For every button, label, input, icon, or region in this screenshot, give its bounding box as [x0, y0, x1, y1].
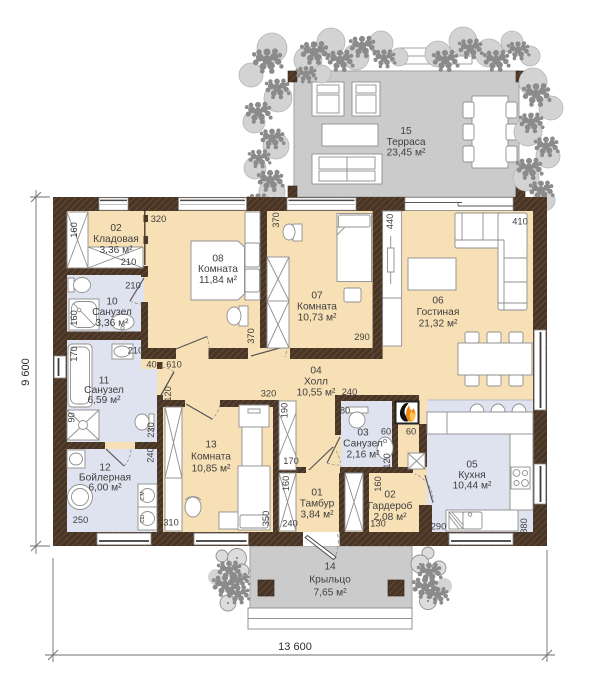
- svg-text:07: 07: [311, 291, 323, 302]
- svg-text:160: 160: [373, 476, 383, 492]
- svg-text:С.М: С.М: [140, 491, 146, 500]
- svg-text:Кухня: Кухня: [458, 470, 485, 481]
- svg-text:240: 240: [342, 387, 358, 397]
- svg-text:6,00 м²: 6,00 м²: [88, 483, 122, 494]
- svg-text:3,36 м²: 3,36 м²: [95, 318, 129, 329]
- svg-text:Комната: Комната: [198, 264, 238, 275]
- svg-text:6,59 м²: 6,59 м²: [87, 395, 121, 406]
- svg-text:410: 410: [512, 217, 528, 227]
- svg-text:350: 350: [261, 511, 271, 527]
- svg-text:250: 250: [73, 515, 89, 525]
- svg-text:320: 320: [151, 214, 167, 224]
- svg-text:2,16 м²: 2,16 м²: [346, 450, 380, 461]
- svg-text:7,65 м²: 7,65 м²: [313, 588, 347, 599]
- svg-text:240: 240: [282, 519, 298, 529]
- svg-text:13: 13: [205, 440, 217, 451]
- svg-text:440: 440: [385, 214, 395, 230]
- svg-text:3,84 м²: 3,84 м²: [300, 510, 334, 521]
- svg-text:120: 120: [163, 386, 173, 402]
- svg-text:160: 160: [69, 310, 79, 326]
- svg-text:60: 60: [406, 427, 416, 437]
- svg-text:11,84 м²: 11,84 м²: [199, 275, 238, 286]
- svg-text:10,85 м²: 10,85 м²: [192, 464, 231, 475]
- svg-text:170: 170: [69, 346, 79, 362]
- svg-text:10: 10: [106, 297, 118, 308]
- svg-text:120: 120: [382, 453, 392, 469]
- svg-text:03: 03: [357, 428, 369, 439]
- svg-text:14: 14: [324, 562, 336, 573]
- svg-text:Терраса: Терраса: [386, 137, 425, 148]
- svg-text:15: 15: [400, 126, 412, 137]
- svg-text:370: 370: [271, 212, 281, 228]
- svg-text:210: 210: [128, 346, 144, 356]
- svg-text:3,36 м²: 3,36 м²: [99, 245, 133, 256]
- svg-text:Комната: Комната: [297, 302, 337, 313]
- svg-text:Гардероб: Гардероб: [368, 500, 413, 512]
- svg-text:290: 290: [354, 332, 370, 342]
- svg-text:10,44 м²: 10,44 м²: [453, 481, 492, 492]
- svg-text:40: 40: [146, 359, 156, 369]
- svg-text:Кладовая: Кладовая: [93, 234, 139, 245]
- svg-text:01: 01: [311, 488, 323, 499]
- svg-text:Гостиная: Гостиная: [417, 307, 460, 318]
- svg-text:СШ: СШ: [140, 514, 146, 523]
- svg-text:Комната: Комната: [191, 452, 231, 463]
- svg-text:130: 130: [370, 519, 386, 529]
- svg-text:06: 06: [432, 296, 444, 307]
- svg-text:160: 160: [69, 222, 79, 238]
- svg-text:02: 02: [110, 223, 122, 234]
- svg-text:290: 290: [431, 522, 447, 532]
- svg-text:13 600: 13 600: [278, 641, 312, 653]
- svg-text:210: 210: [125, 281, 141, 291]
- svg-text:160: 160: [281, 476, 291, 492]
- svg-text:170: 170: [283, 456, 299, 466]
- svg-text:21,32 м²: 21,32 м²: [419, 319, 458, 330]
- svg-text:Санузел: Санузел: [343, 439, 383, 450]
- svg-text:23,45 м²: 23,45 м²: [387, 148, 426, 159]
- svg-text:10,55 м²: 10,55 м²: [297, 388, 336, 399]
- svg-text:9 600: 9 600: [20, 358, 32, 386]
- svg-text:240: 240: [146, 447, 156, 463]
- svg-text:320: 320: [261, 389, 277, 399]
- svg-text:880: 880: [519, 518, 529, 534]
- svg-text:80: 80: [340, 406, 350, 416]
- svg-text:Холл: Холл: [304, 377, 328, 388]
- svg-text:04: 04: [310, 366, 322, 377]
- svg-text:Тамбур: Тамбур: [300, 498, 335, 510]
- svg-text:Крыльцо: Крыльцо: [309, 575, 351, 586]
- svg-text:90: 90: [67, 412, 77, 422]
- svg-text:310: 310: [163, 518, 179, 528]
- svg-text:60: 60: [381, 427, 391, 437]
- svg-text:190: 190: [280, 403, 290, 419]
- svg-text:05: 05: [466, 460, 478, 471]
- svg-text:370: 370: [246, 328, 256, 344]
- svg-text:08: 08: [212, 254, 224, 265]
- svg-text:Санузел: Санузел: [92, 307, 132, 318]
- svg-text:230: 230: [146, 422, 156, 438]
- svg-text:10,73 м²: 10,73 м²: [298, 313, 337, 324]
- svg-text:210: 210: [121, 257, 137, 267]
- svg-text:02: 02: [384, 490, 396, 501]
- svg-text:610: 610: [166, 360, 182, 370]
